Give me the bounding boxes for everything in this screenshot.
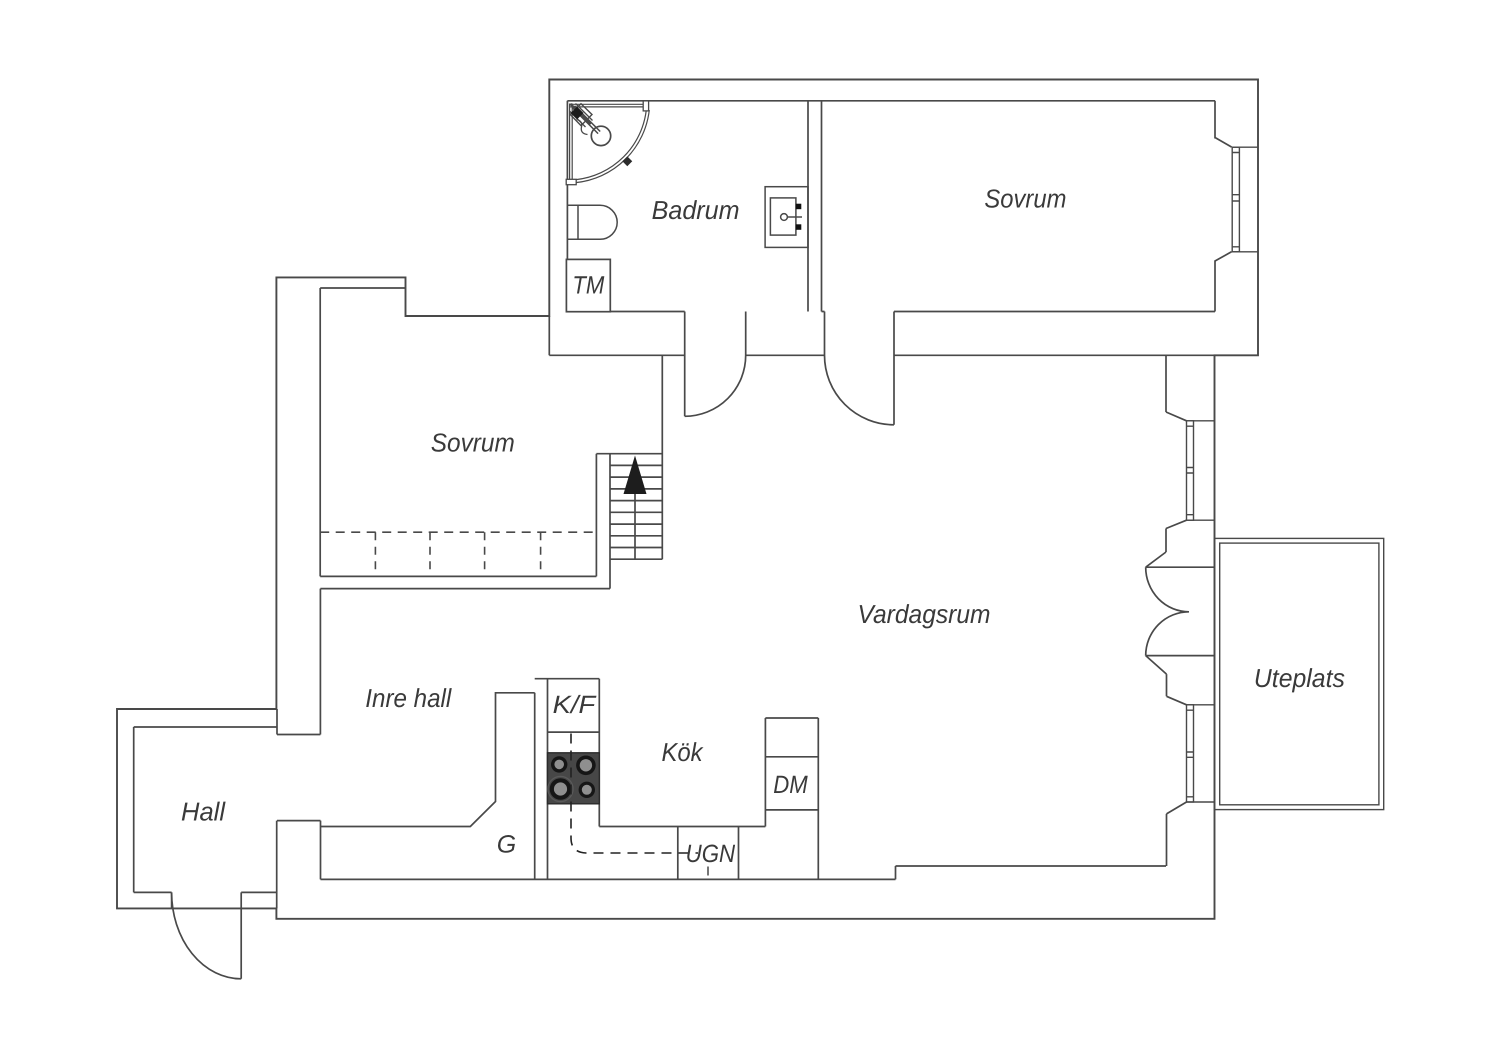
svg-text:UGN: UGN xyxy=(686,840,736,868)
svg-text:Hall: Hall xyxy=(181,796,226,826)
svg-text:Badrum: Badrum xyxy=(652,195,740,225)
svg-text:Uteplats: Uteplats xyxy=(1254,663,1345,693)
svg-text:K/F: K/F xyxy=(553,691,597,719)
svg-text:Kök: Kök xyxy=(662,737,705,767)
svg-text:Sovrum: Sovrum xyxy=(431,427,515,457)
svg-text:DM: DM xyxy=(773,771,808,799)
svg-text:TM: TM xyxy=(572,271,604,299)
svg-text:G: G xyxy=(497,831,516,859)
svg-text:Sovrum: Sovrum xyxy=(984,184,1066,214)
svg-text:Vardagsrum: Vardagsrum xyxy=(858,599,991,629)
svg-text:Inre hall: Inre hall xyxy=(365,683,452,713)
